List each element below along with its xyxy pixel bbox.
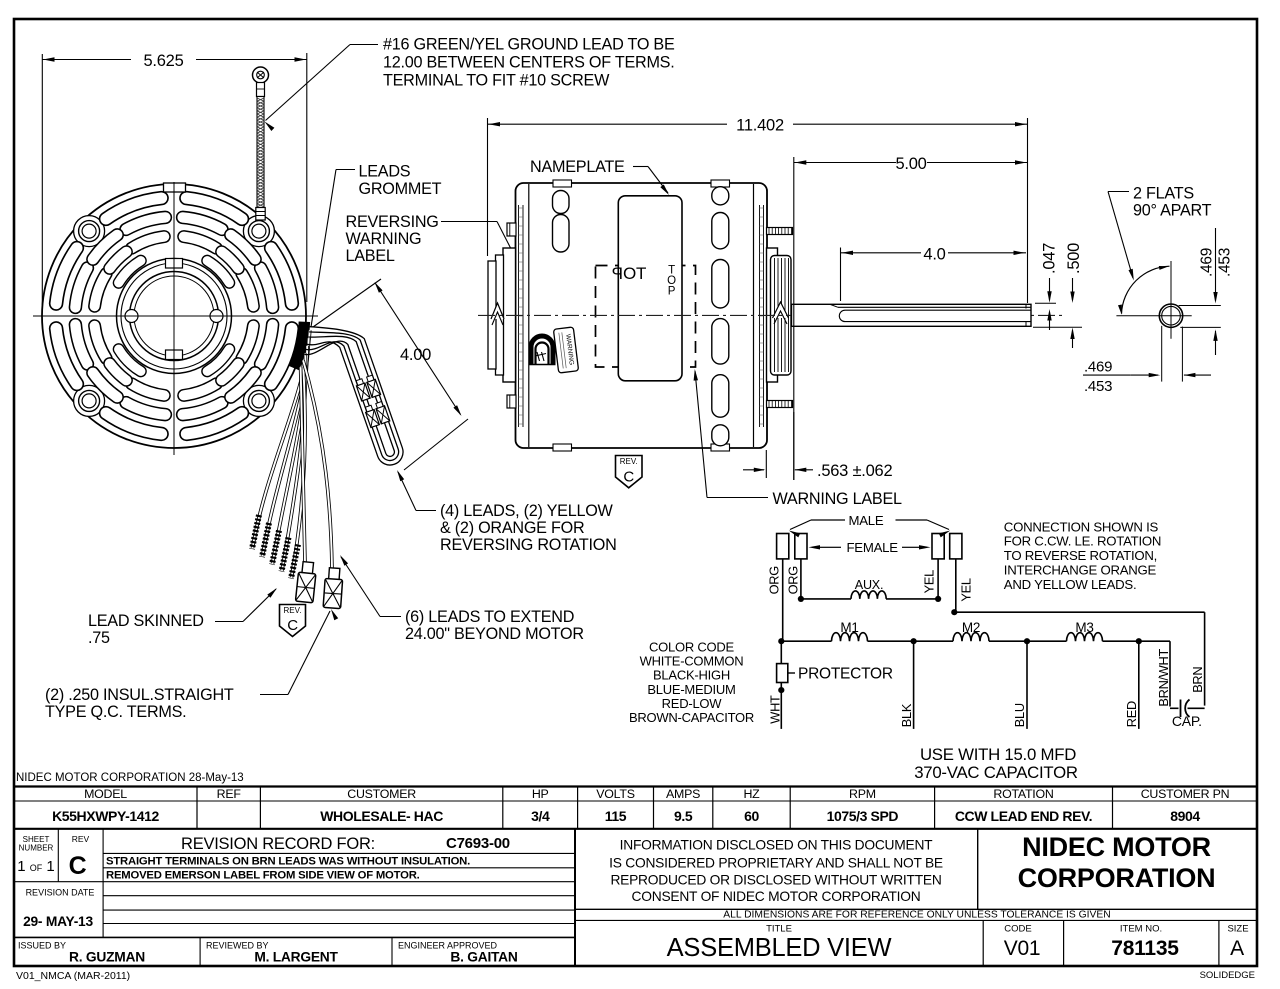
svg-text:RPM: RPM bbox=[849, 787, 876, 801]
svg-text:REVISION DATE: REVISION DATE bbox=[26, 888, 95, 898]
svg-text:FEMALE: FEMALE bbox=[847, 540, 899, 555]
svg-text:LEADS: LEADS bbox=[359, 163, 411, 181]
svg-text:YEL: YEL bbox=[959, 578, 974, 601]
svg-text:5.625: 5.625 bbox=[143, 52, 183, 70]
svg-text:TYPE Q.C. TERMS.: TYPE Q.C. TERMS. bbox=[45, 703, 186, 721]
svg-text:TERMINAL TO FIT #10 SCREW: TERMINAL TO FIT #10 SCREW bbox=[383, 72, 610, 90]
svg-text:CAP.: CAP. bbox=[1172, 713, 1202, 729]
svg-text:CUSTOMER PN: CUSTOMER PN bbox=[1141, 787, 1230, 801]
svg-text:REF: REF bbox=[217, 787, 242, 801]
svg-text:BRN: BRN bbox=[1190, 667, 1205, 693]
svg-text:ORG: ORG bbox=[786, 566, 801, 594]
svg-text:STRAIGHT TERMINALS ON BRN LEAD: STRAIGHT TERMINALS ON BRN LEADS WAS WITH… bbox=[106, 856, 470, 868]
svg-text:M2: M2 bbox=[962, 620, 980, 635]
svg-text:AUX.: AUX. bbox=[855, 578, 883, 592]
svg-text:ALL DIMENSIONS ARE FOR REFEREN: ALL DIMENSIONS ARE FOR REFERENCE ONLY UN… bbox=[723, 910, 1110, 921]
svg-text:GROMMET: GROMMET bbox=[359, 180, 442, 198]
svg-text:NUMBER: NUMBER bbox=[19, 844, 54, 853]
svg-text:FOR C.CW. LE. ROTATION: FOR C.CW. LE. ROTATION bbox=[1004, 534, 1161, 549]
svg-text:.563 ±.062: .563 ±.062 bbox=[817, 462, 892, 480]
svg-text:.469: .469 bbox=[1199, 248, 1216, 277]
svg-text:C: C bbox=[69, 852, 87, 880]
svg-text:SOLIDEDGE: SOLIDEDGE bbox=[1200, 970, 1255, 981]
svg-text:CORPORATION: CORPORATION bbox=[1018, 863, 1216, 893]
svg-text:3/4: 3/4 bbox=[531, 808, 550, 824]
svg-text:781135: 781135 bbox=[1111, 937, 1179, 960]
svg-text:WARNING: WARNING bbox=[346, 230, 422, 248]
svg-text:USE WITH 15.0 MFD: USE WITH 15.0 MFD bbox=[920, 745, 1076, 764]
svg-text:(4) LEADS, (2) YELLOW: (4) LEADS, (2) YELLOW bbox=[440, 502, 614, 520]
svg-text:REMOVED EMERSON LABEL FROM SID: REMOVED EMERSON LABEL FROM SIDE VIEW OF … bbox=[106, 870, 420, 882]
svg-text:1075/3 SPD: 1075/3 SPD bbox=[827, 808, 899, 824]
svg-text:90° APART: 90° APART bbox=[1133, 202, 1212, 220]
svg-text:V01: V01 bbox=[1004, 937, 1041, 960]
svg-text:HZ: HZ bbox=[743, 787, 760, 801]
svg-text:TITLE: TITLE bbox=[766, 924, 792, 935]
svg-text:M. LARGENT: M. LARGENT bbox=[254, 950, 338, 965]
svg-text:BROWN-CAPACITOR: BROWN-CAPACITOR bbox=[629, 710, 754, 725]
svg-text:REV: REV bbox=[72, 834, 90, 844]
svg-text:.453: .453 bbox=[1217, 248, 1234, 277]
svg-text:TOP: TOP bbox=[612, 264, 647, 283]
svg-text:2 FLATS: 2 FLATS bbox=[1133, 185, 1194, 203]
svg-text:8904: 8904 bbox=[1170, 808, 1200, 824]
svg-text:A: A bbox=[1230, 937, 1244, 960]
svg-text:IS CONSIDERED PROPRIETARY AND: IS CONSIDERED PROPRIETARY AND SHALL NOT … bbox=[609, 856, 943, 871]
svg-text:M3: M3 bbox=[1075, 620, 1093, 635]
svg-text:CONNECTION SHOWN IS: CONNECTION SHOWN IS bbox=[1004, 519, 1159, 534]
svg-text:CONSENT OF NIDEC MOTOR CORPORA: CONSENT OF NIDEC MOTOR CORPORATION bbox=[632, 889, 921, 904]
svg-text:PROTECTOR: PROTECTOR bbox=[798, 666, 893, 683]
svg-text:AMPS: AMPS bbox=[666, 787, 700, 801]
svg-text:COLOR CODE: COLOR CODE bbox=[649, 640, 734, 655]
svg-text:VOLTS: VOLTS bbox=[596, 787, 634, 801]
svg-text:NIDEC MOTOR: NIDEC MOTOR bbox=[1022, 832, 1211, 862]
svg-text:NIDEC MOTOR CORPORATION 28-May: NIDEC MOTOR CORPORATION 28-May-13 bbox=[16, 772, 244, 784]
svg-text:INFORMATION DISCLOSED ON THIS: INFORMATION DISCLOSED ON THIS DOCUMENT bbox=[620, 838, 934, 853]
svg-text:BLUE-MEDIUM: BLUE-MEDIUM bbox=[647, 682, 735, 697]
svg-text:CUSTOMER: CUSTOMER bbox=[347, 787, 416, 801]
svg-text:WHT: WHT bbox=[768, 695, 783, 724]
svg-text:INTERCHANGE ORANGE: INTERCHANGE ORANGE bbox=[1004, 563, 1157, 578]
svg-text:SIZE: SIZE bbox=[1227, 924, 1248, 935]
svg-text:BLACK-HIGH: BLACK-HIGH bbox=[653, 668, 730, 683]
svg-text:RED: RED bbox=[1124, 701, 1139, 727]
svg-text:(2) .250 INSUL.STRAIGHT: (2) .250 INSUL.STRAIGHT bbox=[45, 686, 234, 704]
svg-text:CCW LEAD END REV.: CCW LEAD END REV. bbox=[955, 808, 1092, 824]
svg-text:REPRODUCED OR DISCLOSED WITHOU: REPRODUCED OR DISCLOSED WITHOUT WRITTEN bbox=[610, 873, 941, 888]
svg-text:370-VAC CAPACITOR: 370-VAC CAPACITOR bbox=[914, 763, 1078, 782]
svg-text:4.00: 4.00 bbox=[400, 346, 431, 364]
svg-text:V01_NMCA (MAR-2011): V01_NMCA (MAR-2011) bbox=[16, 970, 130, 982]
svg-text:29- MAY-13: 29- MAY-13 bbox=[23, 914, 93, 929]
svg-text:.047: .047 bbox=[1041, 243, 1059, 274]
svg-text:CODE: CODE bbox=[1004, 924, 1031, 935]
svg-text:#16 GREEN/YEL GROUND LEAD TO B: #16 GREEN/YEL GROUND LEAD TO BE bbox=[383, 36, 675, 54]
svg-text:12.00 BETWEEN CENTERS OF TERMS: 12.00 BETWEEN CENTERS OF TERMS. bbox=[383, 54, 674, 72]
svg-text:60: 60 bbox=[744, 808, 759, 824]
svg-text:ORG: ORG bbox=[767, 566, 782, 594]
svg-text:ASSEMBLED VIEW: ASSEMBLED VIEW bbox=[667, 934, 892, 962]
svg-text:9.5: 9.5 bbox=[674, 808, 693, 824]
svg-text:REVERSING: REVERSING bbox=[346, 213, 439, 231]
svg-text:LABEL: LABEL bbox=[346, 247, 395, 265]
svg-text:NAMEPLATE: NAMEPLATE bbox=[530, 158, 625, 176]
svg-text:ITEM NO.: ITEM NO. bbox=[1120, 924, 1162, 935]
svg-text:M1: M1 bbox=[840, 620, 858, 635]
svg-text:WARNING LABEL: WARNING LABEL bbox=[773, 490, 903, 508]
svg-text:BRN/WHT: BRN/WHT bbox=[1156, 649, 1171, 707]
svg-text:AND YELLOW LEADS.: AND YELLOW LEADS. bbox=[1004, 577, 1137, 592]
svg-text:REV.: REV. bbox=[620, 457, 638, 466]
svg-text:B. GAITAN: B. GAITAN bbox=[450, 950, 518, 965]
svg-text:24.00" BEYOND MOTOR: 24.00" BEYOND MOTOR bbox=[405, 625, 584, 643]
svg-text:115: 115 bbox=[605, 808, 627, 824]
svg-text:11.402: 11.402 bbox=[736, 117, 784, 135]
svg-text:(6) LEADS TO EXTEND: (6) LEADS TO EXTEND bbox=[405, 608, 574, 626]
svg-text:& (2) ORANGE FOR: & (2) ORANGE FOR bbox=[440, 519, 584, 537]
svg-text:LEAD SKINNED: LEAD SKINNED bbox=[88, 612, 204, 630]
svg-text:MALE: MALE bbox=[849, 513, 884, 528]
svg-text:R. GUZMAN: R. GUZMAN bbox=[69, 950, 145, 965]
svg-text:BLK: BLK bbox=[899, 703, 914, 727]
svg-text:K55HXWPY-1412: K55HXWPY-1412 bbox=[52, 808, 159, 824]
svg-text:TO REVERSE ROTATION,: TO REVERSE ROTATION, bbox=[1004, 548, 1157, 563]
svg-text:REVISION RECORD FOR:: REVISION RECORD FOR: bbox=[181, 835, 375, 853]
svg-text:C: C bbox=[287, 617, 298, 634]
svg-text:.469: .469 bbox=[1084, 359, 1112, 376]
svg-text:RED-LOW: RED-LOW bbox=[662, 696, 723, 711]
svg-text:REVERSING ROTATION: REVERSING ROTATION bbox=[440, 536, 617, 554]
svg-text:.500: .500 bbox=[1065, 243, 1083, 274]
svg-text:P: P bbox=[668, 286, 676, 298]
svg-text:C7693-00: C7693-00 bbox=[446, 835, 510, 852]
svg-text:.453: .453 bbox=[1084, 378, 1112, 395]
svg-text:HP: HP bbox=[532, 787, 549, 801]
svg-text:BLU: BLU bbox=[1012, 703, 1027, 727]
svg-text:REV.: REV. bbox=[284, 606, 302, 615]
svg-text:YEL: YEL bbox=[922, 570, 937, 593]
svg-text:.75: .75 bbox=[88, 629, 110, 647]
svg-text:C: C bbox=[623, 469, 634, 486]
svg-text:MODEL: MODEL bbox=[84, 787, 127, 801]
svg-text:ROTATION: ROTATION bbox=[993, 787, 1053, 801]
svg-text:WHITE-COMMON: WHITE-COMMON bbox=[640, 654, 744, 669]
svg-text:4.0: 4.0 bbox=[923, 245, 945, 263]
svg-text:WHOLESALE- HAC: WHOLESALE- HAC bbox=[320, 808, 443, 824]
svg-text:5.00: 5.00 bbox=[895, 155, 926, 173]
svg-text:ISSUED BY: ISSUED BY bbox=[18, 941, 66, 951]
